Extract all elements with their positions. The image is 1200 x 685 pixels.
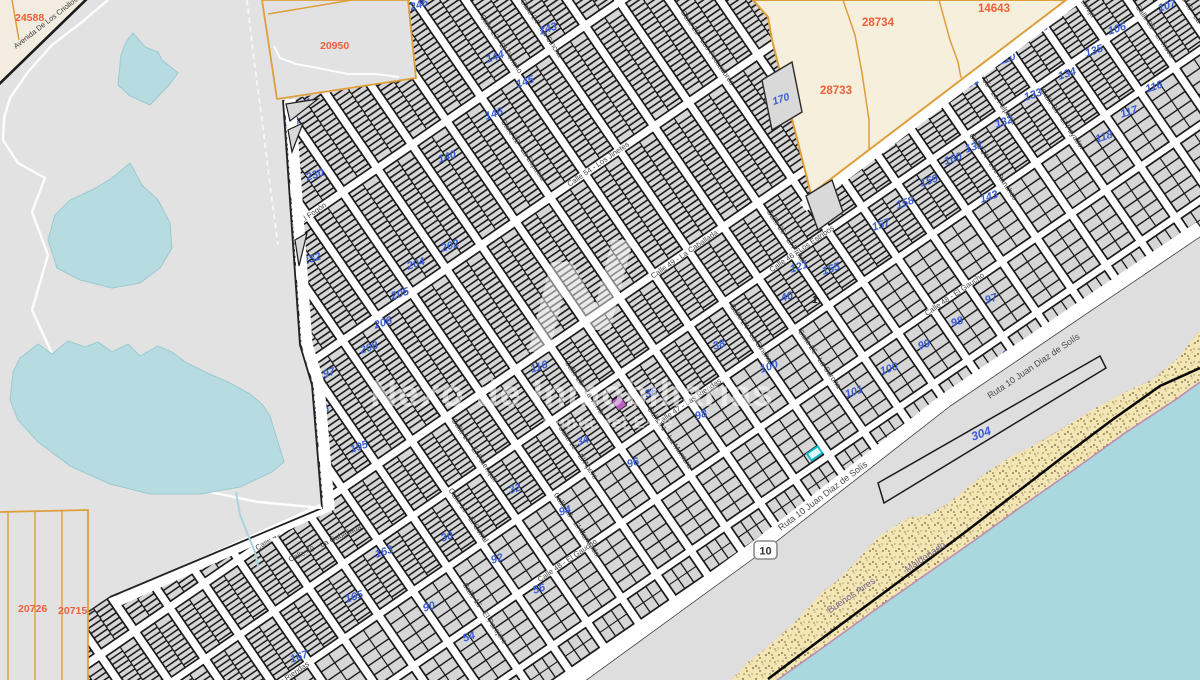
- svg-text:20726: 20726: [18, 603, 47, 615]
- svg-text:14643: 14643: [978, 3, 1010, 15]
- svg-text:20950: 20950: [320, 40, 349, 52]
- svg-text:10: 10: [759, 546, 771, 558]
- svg-text:Punta del Este: Punta del Este: [542, 413, 673, 432]
- svg-text:20715: 20715: [58, 605, 87, 617]
- svg-text:28734: 28734: [862, 17, 895, 29]
- svg-text:28733: 28733: [820, 85, 852, 97]
- svg-text:1: 1: [812, 295, 818, 306]
- svg-text:Nexo de Inmobiliarias: Nexo de Inmobiliarias: [370, 373, 773, 414]
- svg-text:24588: 24588: [15, 12, 44, 24]
